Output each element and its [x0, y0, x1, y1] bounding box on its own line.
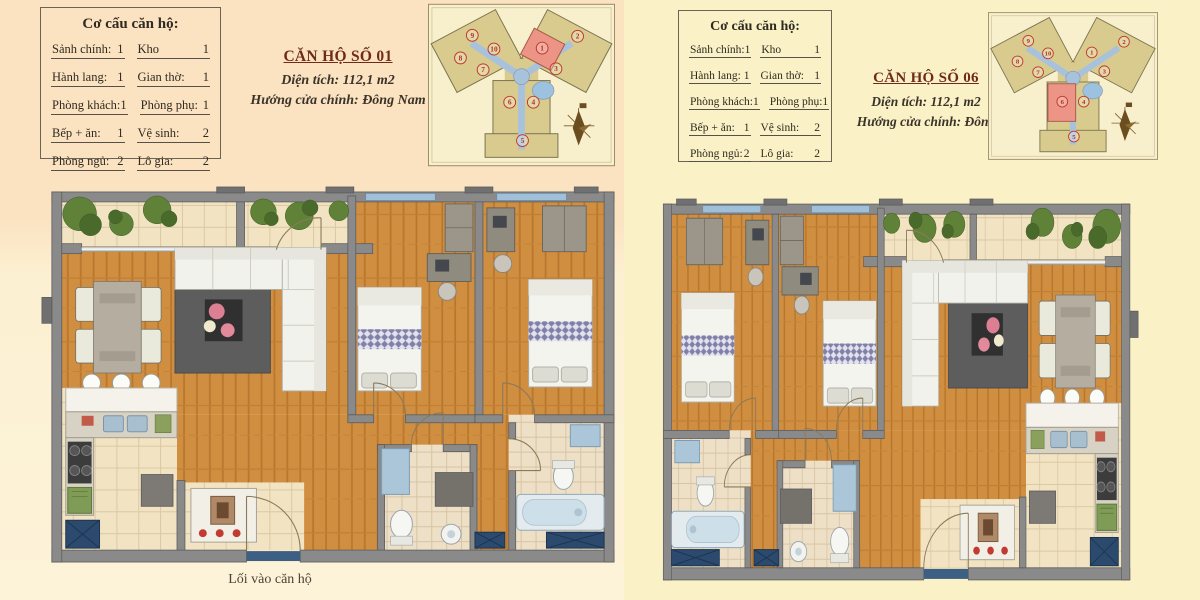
table-row: Phòng ngủ:2 Lô gia:2 [51, 154, 210, 171]
table-row: Phòng khách:1 Phòng phụ:1 [51, 98, 210, 115]
apartment-area: Diện tích: 112,1 m2 [238, 71, 438, 91]
row-value: 1 [120, 98, 126, 113]
row-value: 2 [744, 148, 750, 160]
table-row: Bếp + ăn:1 Vệ sinh:2 [689, 122, 821, 136]
row-value: 2 [203, 154, 209, 169]
row-label: Hành lang: [52, 70, 107, 85]
keyplan-apartment-01: 1 2 3 4 5 6 7 8 9 10 [428, 3, 615, 167]
apartment-direction: Hướng cửa chính: Đông Nam [238, 91, 438, 111]
svg-text:7: 7 [481, 65, 485, 74]
table-row: Sảnh chính:1 Kho1 [689, 44, 821, 58]
panel-apartment-01: Cơ cấu căn hộ: Sảnh chính:1 Kho1 Hành la… [0, 0, 624, 600]
row-label: Phòng khách: [690, 96, 753, 108]
row-label: Phòng phụ: [770, 96, 823, 108]
row-label: Sảnh chính: [690, 44, 745, 56]
table-row: Hành lang:1 Gian thờ:1 [689, 70, 821, 84]
row-value: 1 [203, 98, 209, 113]
row-value: 1 [117, 42, 123, 57]
row-label: Kho [138, 42, 160, 57]
row-label: Vệ sinh: [138, 126, 180, 141]
svg-text:10: 10 [1045, 51, 1052, 58]
table-row: Sảnh chính:1 Kho1 [51, 42, 210, 59]
svg-text:5: 5 [521, 136, 525, 145]
table-row: Hành lang:1 Gian thờ:1 [51, 70, 210, 87]
row-label: Lô gia: [761, 148, 794, 160]
row-value: 1 [117, 126, 123, 141]
row-label: Phòng phụ: [141, 98, 198, 113]
row-label: Hành lang: [690, 70, 741, 82]
svg-text:1: 1 [1090, 50, 1093, 57]
apartment-title: CĂN HỘ SỐ 01 [238, 48, 438, 66]
floorplan-apartment-01 [30, 184, 618, 570]
svg-text:10: 10 [490, 45, 498, 54]
row-value: 1 [753, 96, 759, 108]
svg-text:4: 4 [531, 98, 535, 107]
panel-apartment-06: Cơ cấu căn hộ: Sảnh chính:1 Kho1 Hành la… [624, 0, 1200, 600]
svg-text:1: 1 [540, 44, 544, 53]
row-label: Sảnh chính: [52, 42, 111, 57]
apartment-title-block: CĂN HỘ SỐ 01 Diện tích: 112,1 m2 Hướng c… [238, 48, 438, 112]
row-label: Bếp + ăn: [690, 122, 735, 134]
table-row: Phòng ngủ:2 Lô gia:2 [689, 148, 821, 162]
row-label: Gian thờ: [138, 70, 185, 85]
row-value: 2 [117, 154, 123, 169]
table-row: Bếp + ăn:1 Vệ sinh:2 [51, 126, 210, 143]
svg-text:3: 3 [554, 64, 558, 73]
row-value: 1 [744, 122, 750, 134]
row-label: Phòng khách: [52, 98, 120, 113]
unit-structure-table: Cơ cấu căn hộ: Sảnh chính:1 Kho1 Hành la… [678, 10, 832, 162]
row-label: Vệ sinh: [761, 122, 800, 134]
floorplan-apartment-06 [660, 196, 1148, 588]
row-label: Phòng ngủ: [52, 154, 109, 169]
svg-text:9: 9 [470, 31, 474, 40]
row-value: 1 [745, 44, 751, 56]
svg-text:6: 6 [508, 98, 512, 107]
row-label: Phòng ngủ: [690, 148, 743, 160]
svg-text:8: 8 [459, 53, 463, 62]
row-value: 2 [814, 148, 820, 160]
row-value: 1 [203, 70, 209, 85]
row-value: 2 [203, 126, 209, 141]
keyplan-apartment-06: 1 2 3 4 5 6 7 8 9 10 [988, 5, 1158, 167]
row-value: 1 [814, 44, 820, 56]
table-title: Cơ cấu căn hộ: [51, 16, 210, 33]
row-label: Kho [761, 44, 781, 56]
unit-structure-table: Cơ cấu căn hộ: Sảnh chính:1 Kho1 Hành la… [40, 7, 221, 159]
row-value: 1 [822, 96, 828, 108]
entrance-label: Lối vào căn hộ [150, 572, 390, 588]
table-title: Cơ cấu căn hộ: [689, 19, 821, 35]
row-value: 1 [203, 42, 209, 57]
row-label: Bếp + ăn: [52, 126, 101, 141]
row-value: 1 [744, 70, 750, 82]
row-label: Gian thờ: [761, 70, 804, 82]
row-value: 1 [814, 70, 820, 82]
svg-text:2: 2 [576, 32, 580, 41]
row-value: 2 [814, 122, 820, 134]
row-value: 1 [117, 70, 123, 85]
row-label: Lô gia: [138, 154, 174, 169]
table-row: Phòng khách:1 Phòng phụ:1 [689, 96, 821, 110]
